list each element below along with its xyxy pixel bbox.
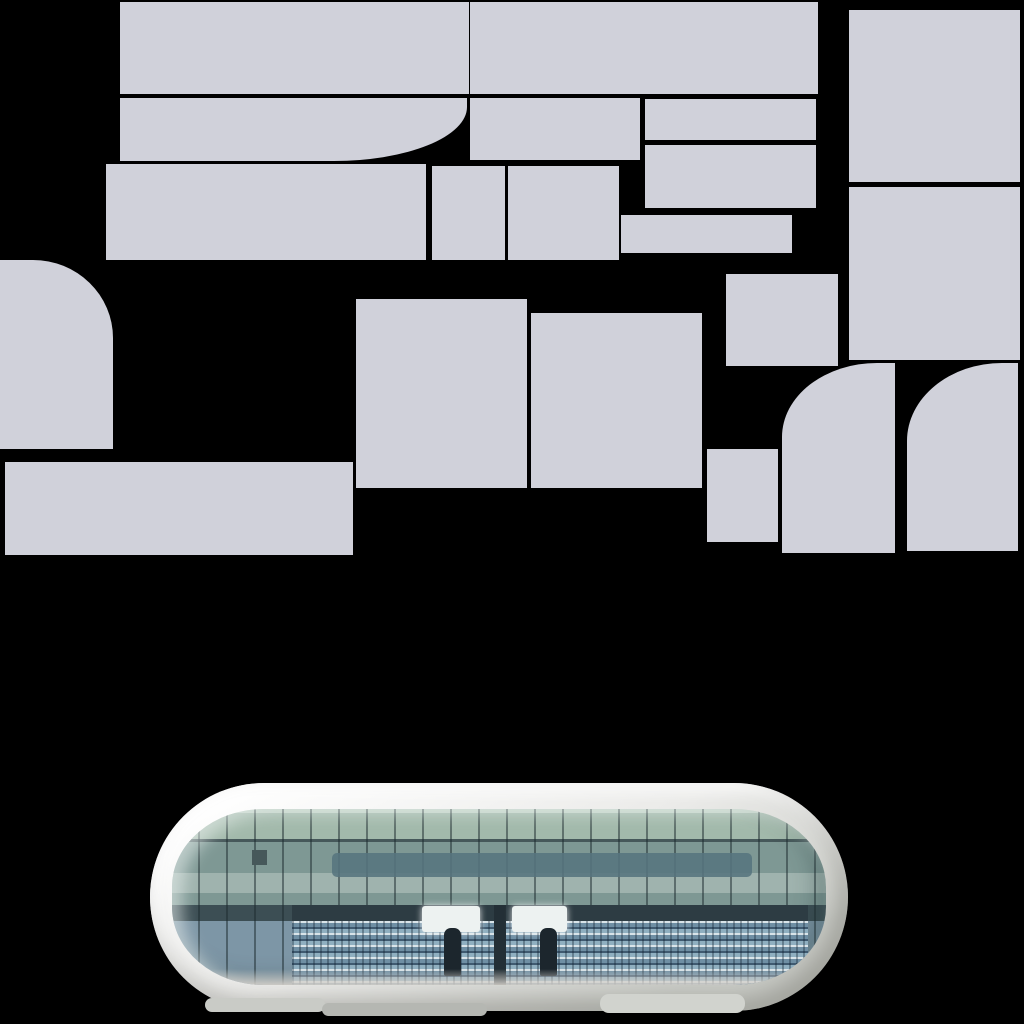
glass-bottom-shade — [172, 969, 826, 985]
mirror-ground-shadow — [205, 998, 325, 1012]
mirror-glass — [172, 809, 826, 985]
mirror-ground-shadow — [322, 1003, 487, 1016]
atlas-tile-9 — [432, 166, 505, 260]
sprite-canvas — [0, 0, 1024, 1024]
atlas-tile-11 — [621, 215, 792, 253]
dark-window — [252, 850, 267, 865]
atlas-tile-6 — [645, 99, 816, 140]
atlas-tile-13 — [849, 187, 1020, 360]
atlas-tile-2 — [470, 2, 818, 94]
atlas-tile-3 — [849, 10, 1020, 182]
atlas-tile-4 — [120, 98, 467, 161]
atlas-tile-16 — [356, 299, 527, 488]
mirror-frame — [150, 783, 848, 1011]
atlas-tile-15 — [5, 462, 353, 555]
atlas-tile-12 — [726, 274, 838, 366]
atlas-tile-18 — [707, 449, 778, 542]
atlas-tile-19 — [782, 363, 895, 553]
atlas-tile-10 — [508, 166, 619, 260]
atlas-tile-1 — [120, 2, 469, 94]
atlas-tile-8 — [106, 164, 426, 260]
atlas-tile-17 — [531, 313, 702, 488]
atlas-tile-20 — [907, 363, 1018, 551]
atlas-tile-5 — [470, 98, 640, 160]
atlas-tile-14 — [0, 260, 113, 449]
atlas-tile-7 — [645, 145, 816, 208]
mirror-ground-shadow — [600, 994, 745, 1013]
facade-blue-band — [332, 853, 752, 877]
glare-panel-right — [512, 906, 567, 932]
